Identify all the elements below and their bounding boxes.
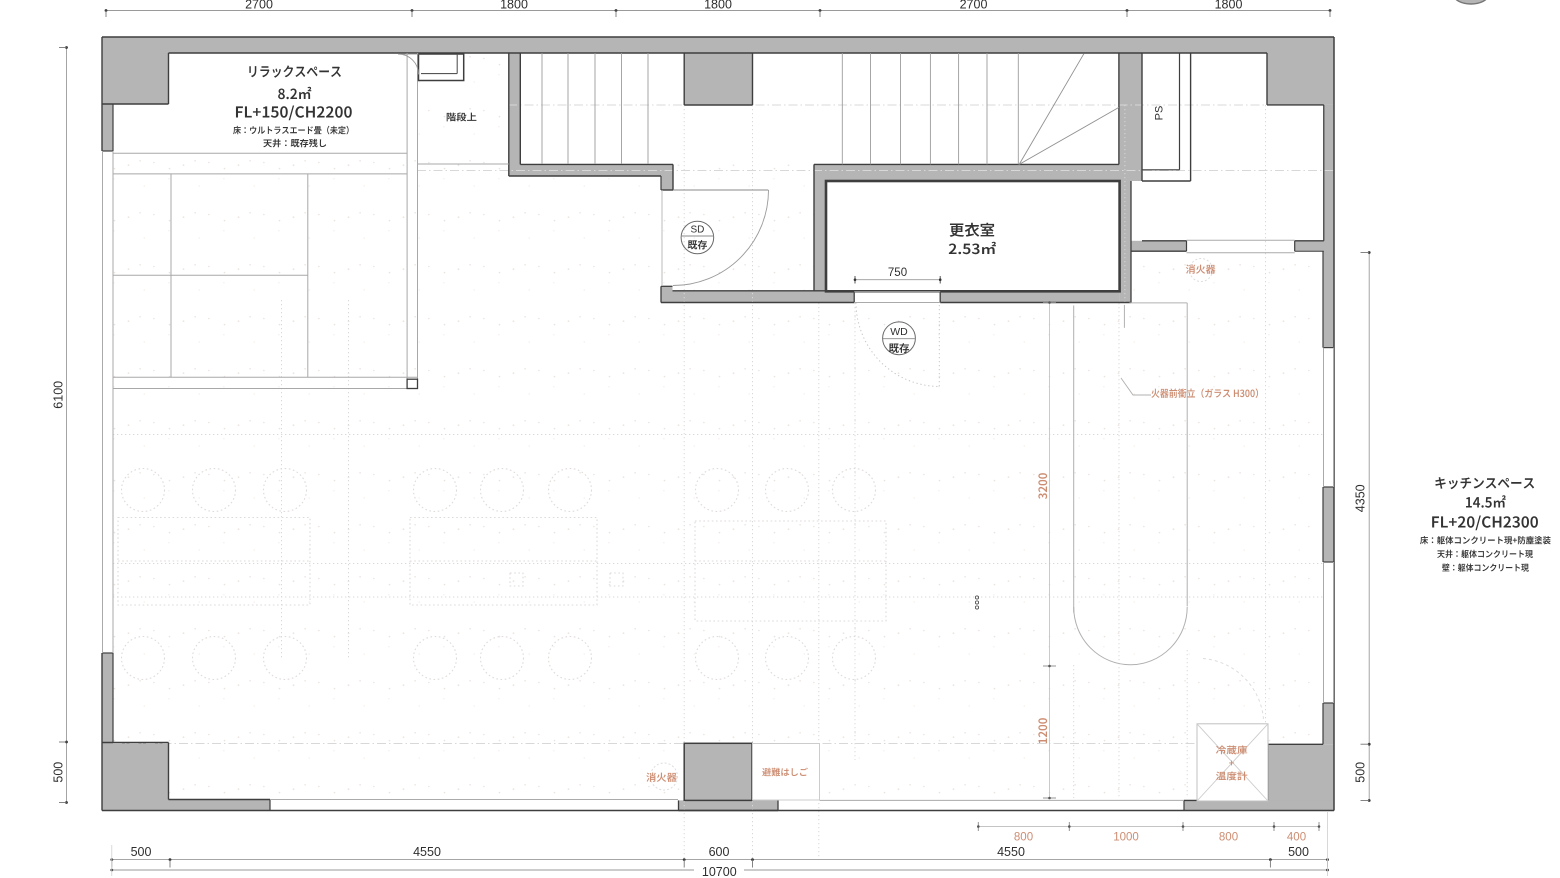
svg-text:SD: SD [690, 225, 704, 236]
svg-text:500: 500 [1354, 762, 1368, 783]
svg-text:6100: 6100 [51, 381, 65, 409]
svg-text:1800: 1800 [704, 0, 732, 12]
svg-text:500: 500 [131, 845, 152, 859]
svg-text:800: 800 [1014, 832, 1033, 844]
svg-text:400: 400 [1287, 832, 1306, 844]
svg-text:750: 750 [888, 267, 907, 279]
svg-text:4550: 4550 [413, 845, 441, 859]
svg-text:2700: 2700 [245, 0, 273, 12]
svg-text:PS: PS [1153, 106, 1165, 121]
svg-text:2700: 2700 [960, 0, 988, 12]
svg-text:800: 800 [1219, 832, 1238, 844]
svg-text:500: 500 [51, 762, 65, 783]
svg-text:500: 500 [1288, 845, 1309, 859]
svg-text:1000: 1000 [1113, 832, 1139, 844]
svg-text:WD: WD [890, 326, 908, 338]
svg-text:600: 600 [709, 845, 730, 859]
svg-text:10700: 10700 [702, 865, 737, 878]
svg-text:1800: 1800 [1215, 0, 1243, 12]
svg-text:4350: 4350 [1354, 484, 1368, 512]
svg-text:4550: 4550 [997, 845, 1025, 859]
svg-text:1800: 1800 [500, 0, 528, 12]
